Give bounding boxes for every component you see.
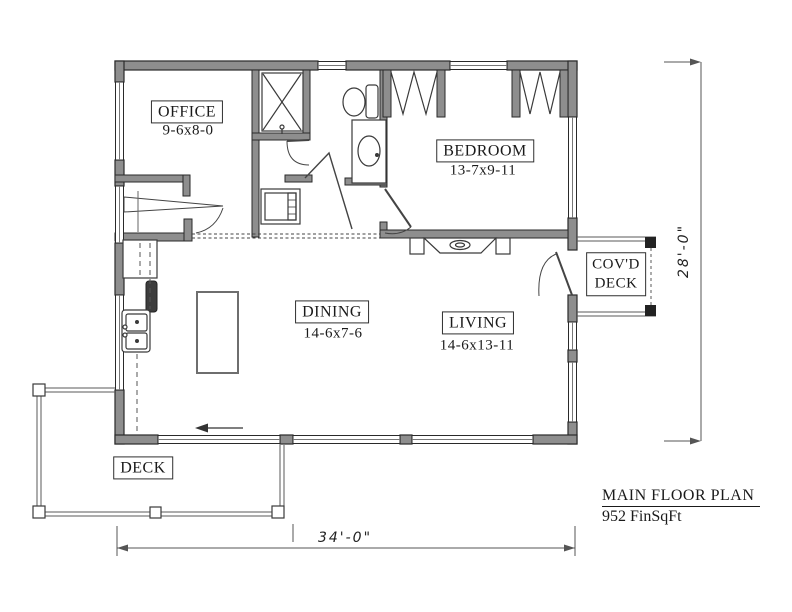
deck-railing: [33, 384, 284, 518]
dining-size: 14-6x7-6: [304, 326, 363, 343]
bifold-closet-doors: [391, 72, 560, 114]
living-size: 14-6x13-11: [440, 338, 514, 355]
living-label: LIVING: [442, 311, 514, 334]
bathroom-door: [287, 140, 309, 165]
covd-deck-label-line1: COV'D: [592, 255, 640, 274]
washer-dryer-unit: [261, 189, 300, 224]
range: [146, 281, 157, 312]
height-dimension-text: 28'-0": [676, 224, 692, 278]
bedroom-door: [385, 189, 411, 234]
plan-area: 952 FinSqFt: [602, 508, 760, 526]
entry-direction-arrow-icon: [195, 424, 243, 433]
width-dimension-text: 34'-0": [318, 530, 372, 546]
deck-door: [539, 252, 572, 296]
ceiling-break-line: [192, 234, 380, 238]
refrigerator: [123, 240, 157, 278]
office-size: 9-6x8-0: [163, 123, 214, 140]
kitchen-island: [197, 292, 238, 373]
deck-label: DECK: [113, 456, 173, 479]
floor-plan: OFFICE 9-6x8-0 BEDROOM 13-7x9-11 DINING …: [0, 0, 792, 612]
bedroom-size: 13-7x9-11: [450, 163, 516, 180]
fireplace: [410, 238, 510, 254]
kitchen-sink-fixture: [122, 310, 150, 352]
hall-closet-doors: [305, 153, 352, 229]
bedroom-label: BEDROOM: [436, 139, 534, 162]
office-label: OFFICE: [151, 100, 223, 123]
entry-door: [124, 191, 223, 233]
dining-label: DINING: [295, 300, 369, 323]
plan-title: MAIN FLOOR PLAN: [602, 487, 760, 507]
shower-fixture: [262, 73, 303, 134]
title-block: MAIN FLOOR PLAN 952 FinSqFt: [602, 487, 760, 526]
covd-deck-label-line2: DECK: [592, 274, 640, 293]
toilet-fixture: [343, 85, 378, 118]
vanity-sink-fixture: [352, 120, 386, 183]
covd-deck-label: COV'D DECK: [586, 252, 646, 296]
